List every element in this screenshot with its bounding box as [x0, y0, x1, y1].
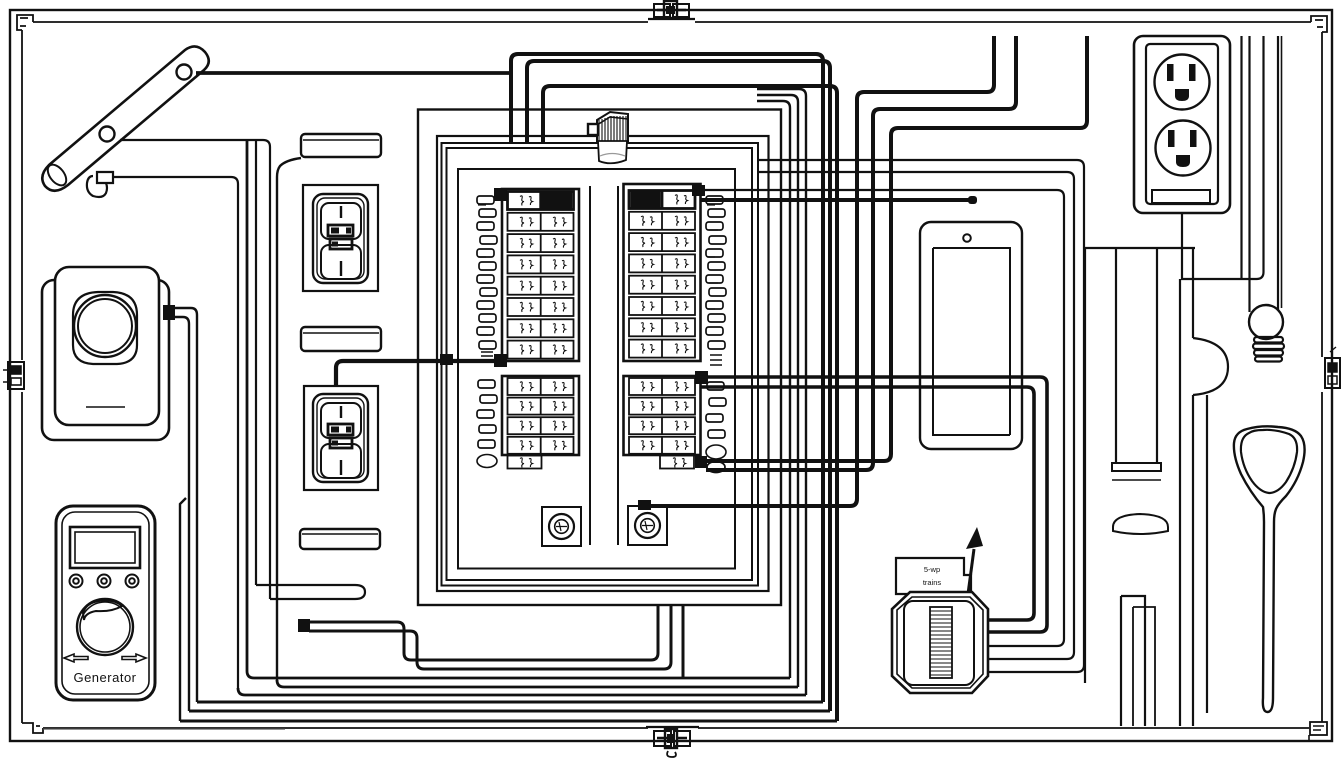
svg-text:Generator: Generator — [73, 670, 136, 685]
svg-text:trains: trains — [923, 578, 942, 587]
svg-text:5-wp: 5-wp — [924, 565, 940, 574]
